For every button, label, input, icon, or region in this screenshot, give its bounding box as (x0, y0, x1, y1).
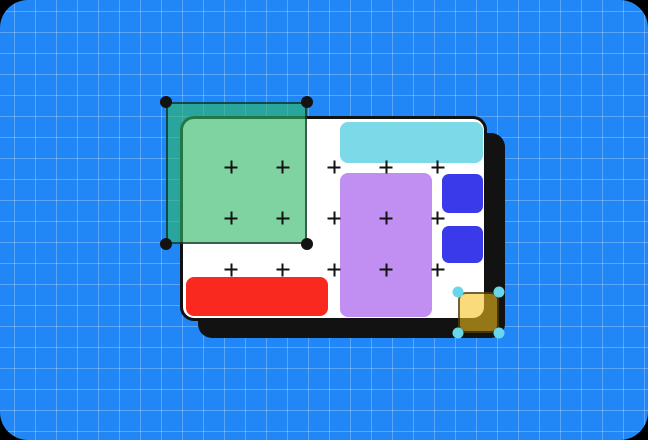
blue-square-2-shape[interactable] (442, 226, 483, 263)
selection-handle-bottom-right[interactable] (494, 328, 505, 339)
cyan-bar-shape[interactable] (340, 122, 483, 163)
stage (0, 0, 648, 440)
selection-handle-bottom-left[interactable] (160, 238, 172, 250)
green-rect-shape-selected[interactable] (166, 102, 307, 244)
purple-rect-shape[interactable] (340, 173, 432, 317)
selection-handle-top-left[interactable] (453, 287, 464, 298)
blue-square-1-shape[interactable] (442, 174, 483, 213)
selection-handle-top-left[interactable] (160, 96, 172, 108)
selection-handle-bottom-right[interactable] (301, 238, 313, 250)
orange-square-shape-selected[interactable] (458, 292, 499, 333)
selection-handle-bottom-left[interactable] (453, 328, 464, 339)
canvas-background-grid (0, 0, 648, 440)
red-bar-shape[interactable] (186, 277, 328, 316)
selection-handle-top-right[interactable] (494, 287, 505, 298)
selection-handle-top-right[interactable] (301, 96, 313, 108)
